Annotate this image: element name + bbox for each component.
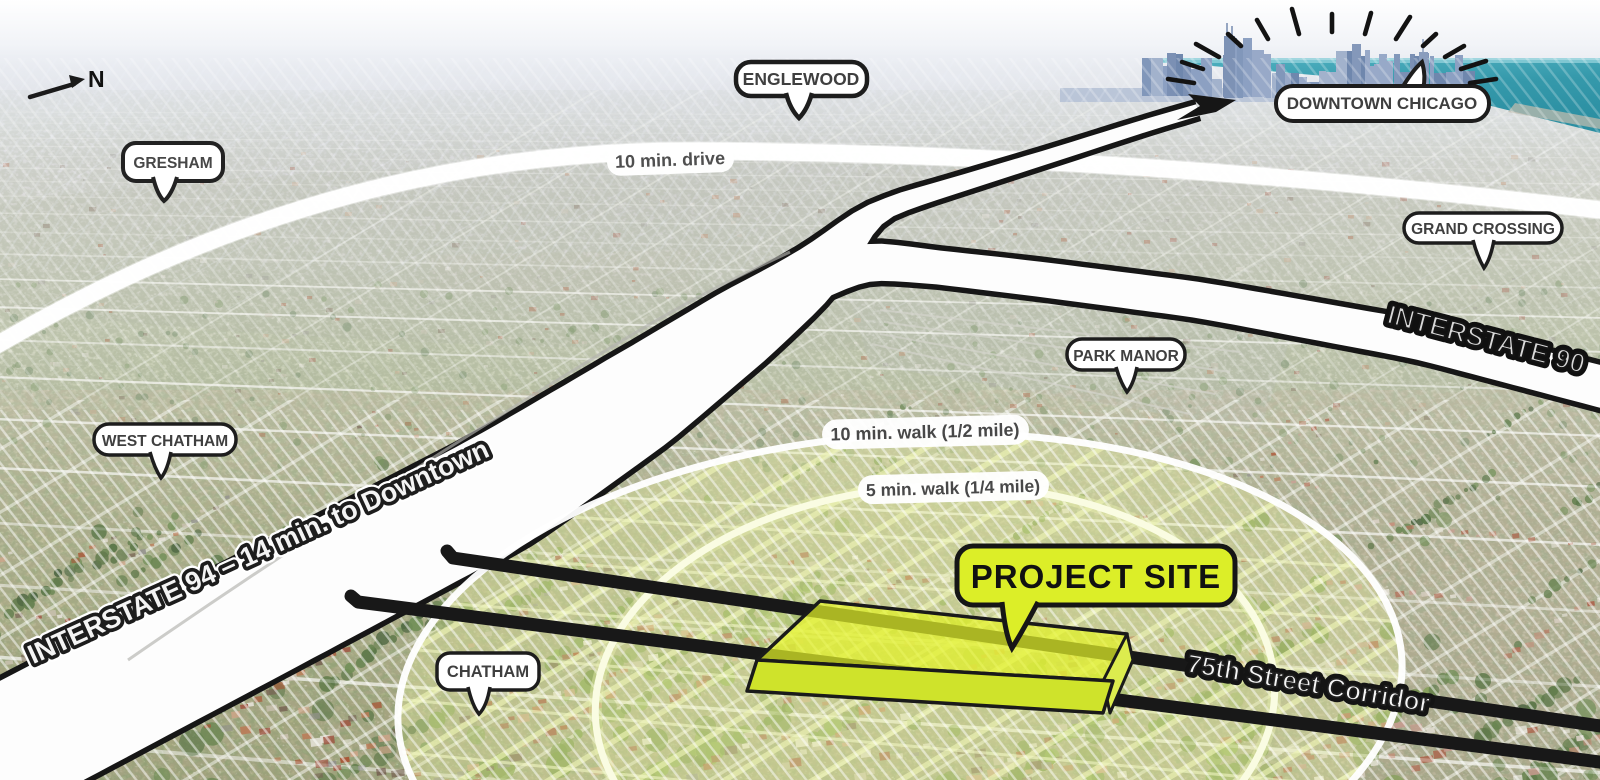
- svg-text:GRAND CROSSING: GRAND CROSSING: [1411, 221, 1555, 238]
- svg-text:CHATHAM: CHATHAM: [447, 663, 529, 681]
- svg-text:PROJECT SITE: PROJECT SITE: [971, 558, 1221, 595]
- svg-text:WEST CHATHAM: WEST CHATHAM: [102, 433, 228, 450]
- svg-text:ENGLEWOOD: ENGLEWOOD: [743, 69, 860, 89]
- svg-text:GRESHAM: GRESHAM: [133, 155, 212, 172]
- svg-text:DOWNTOWN CHICAGO: DOWNTOWN CHICAGO: [1287, 94, 1477, 113]
- svg-text:N: N: [88, 66, 105, 92]
- svg-text:PARK MANOR: PARK MANOR: [1073, 348, 1179, 365]
- svg-text:10 min. drive: 10 min. drive: [615, 148, 726, 172]
